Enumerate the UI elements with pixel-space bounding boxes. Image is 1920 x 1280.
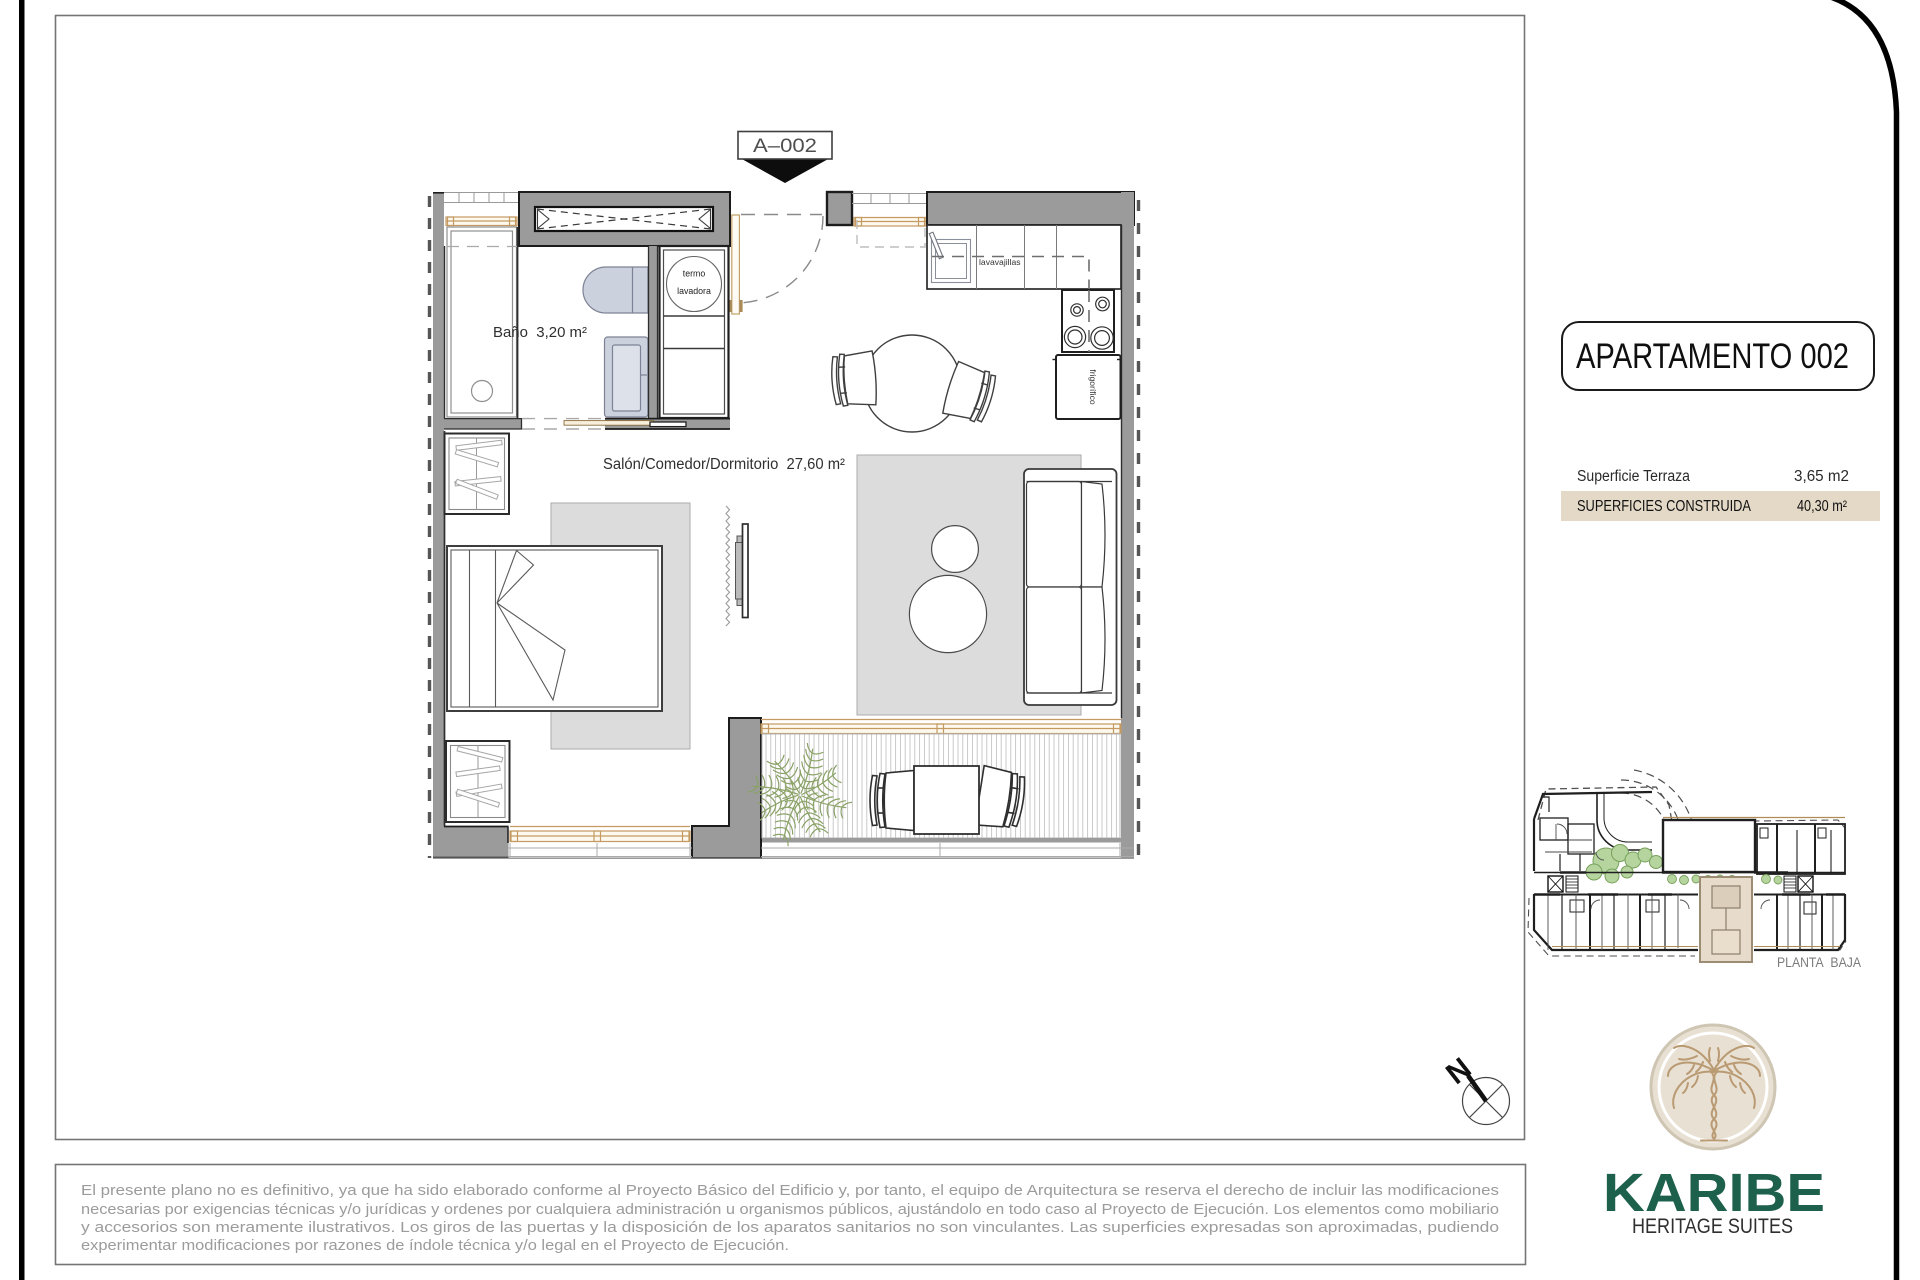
svg-text:lavadora: lavadora [677, 286, 711, 296]
svg-text:40,30 m²: 40,30 m² [1797, 498, 1847, 515]
svg-text:experimentar modificaciones po: experimentar modificaciones por razones … [81, 1237, 789, 1254]
svg-text:3,65 m2: 3,65 m2 [1794, 468, 1849, 485]
svg-text:Superficie Terraza: Superficie Terraza [1577, 468, 1690, 485]
svg-text:APARTAMENTO 002: APARTAMENTO 002 [1576, 337, 1849, 376]
svg-text:El presente plano no es defini: El presente plano no es definitivo, ya q… [81, 1182, 1499, 1199]
svg-text:Salón/Comedor/Dormitorio 27,6: Salón/Comedor/Dormitorio 27,60 m² [603, 456, 845, 473]
svg-text:HERITAGE SUITES: HERITAGE SUITES [1632, 1214, 1793, 1238]
svg-text:A–002: A–002 [753, 135, 817, 157]
svg-text:Baño 3,20 m²: Baño 3,20 m² [493, 325, 587, 341]
svg-text:y accesorios son meramente ilu: y accesorios son meramente ilustrativos.… [81, 1219, 1499, 1236]
svg-text:necesarias por exigencias técn: necesarias por exigencias técnicas y/o j… [81, 1201, 1499, 1218]
svg-text:PLANTA BAJA: PLANTA BAJA [1777, 954, 1862, 970]
svg-text:lavavajillas: lavavajillas [979, 257, 1021, 267]
svg-text:termo: termo [683, 269, 706, 279]
svg-text:SUPERFICIES CONSTRUIDA: SUPERFICIES CONSTRUIDA [1577, 498, 1752, 515]
svg-text:frigorífico: frigorífico [1088, 369, 1098, 405]
